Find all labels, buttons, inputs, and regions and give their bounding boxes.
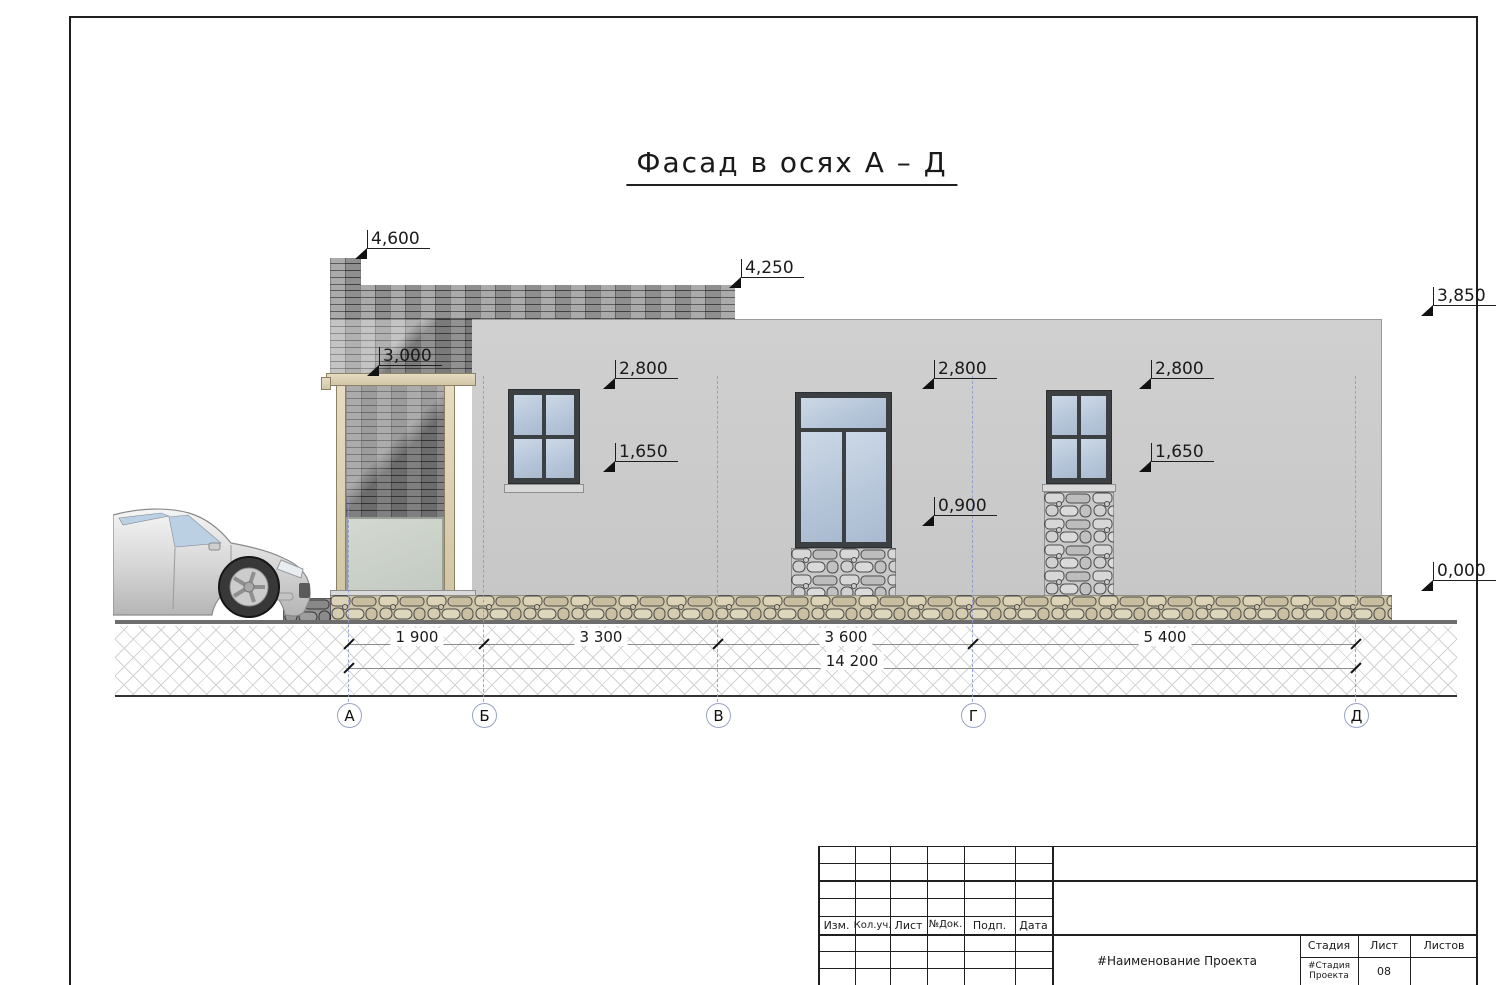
tb-col-list: Лист <box>890 916 927 934</box>
elevation-mark-window-sill-1: 1,650 <box>603 442 678 462</box>
tb-col-koluch: Кол.уч. <box>855 916 890 934</box>
elevation-mark-pergola: 3,000 <box>367 346 442 366</box>
window-transom <box>801 398 886 428</box>
tb-col-data: Дата <box>1015 916 1052 934</box>
tb-sheet-label: Лист <box>1358 934 1410 957</box>
elevation-mark-window-head-1: 2,800 <box>603 359 678 379</box>
dimension-label-bv: 3 300 <box>575 628 628 646</box>
window-pane <box>1052 396 1077 435</box>
axis-grid-line-v <box>717 376 718 702</box>
window-pane <box>846 432 887 542</box>
axis-grid-line-g <box>972 376 973 702</box>
tb-project-name: #Наименование Проекта <box>1054 936 1300 985</box>
brick-wall-carport <box>346 385 444 518</box>
axis-bubble-d: Д <box>1344 703 1369 728</box>
window-pane <box>546 439 574 479</box>
axis-grid-line-a <box>348 500 349 702</box>
elevation-mark-chimney: 4,600 <box>355 229 430 249</box>
window-pane <box>1081 396 1106 435</box>
tb-col-izm: Изм. <box>818 916 855 934</box>
window-pane <box>801 432 842 542</box>
window-pane <box>514 395 542 435</box>
tb-sheets-value <box>1410 957 1478 985</box>
car-grille <box>299 583 310 598</box>
dimension-label-ab: 1 900 <box>391 628 444 646</box>
window-pane <box>514 439 542 479</box>
tb-sheet-number: 08 <box>1358 957 1410 985</box>
tb-stage-label: Стадия <box>1300 934 1358 957</box>
window-right-sill <box>1042 484 1116 492</box>
elevation-mark-window-sill-2: 0,900 <box>922 496 997 516</box>
stone-pier-right <box>1044 492 1114 598</box>
brick-parapet <box>330 285 735 319</box>
elevation-mark-parapet: 4,250 <box>729 258 804 278</box>
window-left <box>508 389 580 484</box>
axis-bubble-v: В <box>706 703 731 728</box>
window-right <box>1046 390 1112 484</box>
window-center <box>795 392 892 548</box>
elevation-mark-window-head-3: 2,800 <box>1139 359 1214 379</box>
window-pane <box>1081 439 1106 478</box>
stone-pier-center <box>791 548 896 598</box>
tb-col-ndok: №Док. <box>927 919 964 930</box>
ground-hatch <box>115 626 1457 697</box>
axis-bubble-g: Г <box>961 703 986 728</box>
axis-bubble-a: А <box>337 703 362 728</box>
elevation-mark-ground: 0,000 <box>1421 561 1496 581</box>
tb-col-podp: Подп. <box>964 916 1015 934</box>
window-pane <box>546 395 574 435</box>
dimension-label-vg: 3 600 <box>820 628 873 646</box>
tb-stage-value: #Стадия Проекта <box>1302 957 1356 985</box>
title-block: Изм. Кол.уч. Лист №Док. Подп. Дата #Наим… <box>818 846 1478 985</box>
axis-grid-line-d <box>1355 376 1356 702</box>
elevation-mark-window-sill-3: 1,650 <box>1139 442 1214 462</box>
drawing-title: Фасад в осях А – Д <box>626 146 957 186</box>
car-illustration <box>113 503 320 621</box>
window-left-sill <box>504 484 584 493</box>
elevation-mark-wall-top: 3,850 <box>1421 286 1496 306</box>
carport-glass-panel <box>346 517 444 592</box>
window-pane <box>1052 439 1077 478</box>
elevation-mark-window-head-2: 2,800 <box>922 359 997 379</box>
dimension-label-total: 14 200 <box>821 652 884 670</box>
stone-plinth <box>330 595 1392 622</box>
pergola-post-right <box>444 385 455 593</box>
dimension-label-gd: 5 400 <box>1139 628 1192 646</box>
pergola-post-left <box>336 385 346 593</box>
drawing-sheet: Фасад в осях А – Д <box>0 0 1497 985</box>
tb-sheets-label: Листов <box>1410 934 1478 957</box>
axis-grid-line-b <box>483 376 484 702</box>
pergola-bracket <box>321 377 331 390</box>
car-mirror <box>209 543 220 550</box>
axis-bubble-b: Б <box>472 703 497 728</box>
